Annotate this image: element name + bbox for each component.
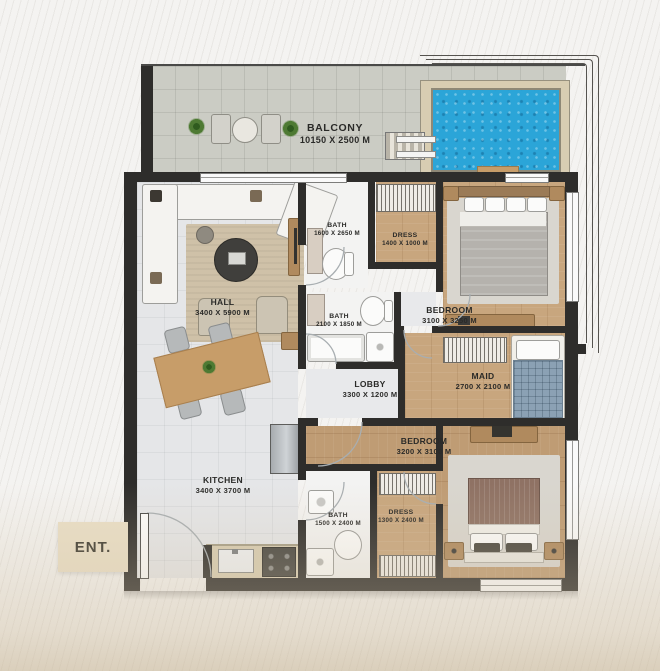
bed-sheet-fold — [460, 212, 546, 227]
room-dims: 1300 X 2400 M — [366, 517, 436, 525]
pool-ladder-icon — [396, 136, 436, 143]
room-name: HALL — [170, 297, 275, 308]
room-label-bath-top: BATH 1600 X 2650 M — [302, 222, 372, 238]
room-dims: 3100 X 3250 M — [392, 316, 507, 325]
window — [566, 192, 579, 302]
nightstand-icon — [549, 186, 565, 201]
room-name: BATH — [302, 222, 372, 230]
room-name: BALCONY — [270, 122, 400, 135]
side-table-icon — [196, 226, 214, 244]
room-label-hall: HALL 3400 X 5900 M — [170, 297, 275, 317]
room-label-bath-bottom: BATH 1500 X 2400 M — [302, 512, 374, 528]
room-name: LOBBY — [320, 379, 420, 390]
balcony-chair-icon — [211, 114, 231, 144]
toilet-tank-icon — [344, 252, 354, 276]
room-dims: 2700 X 2100 M — [432, 382, 534, 391]
room-dims: 1500 X 2400 M — [302, 520, 374, 528]
room-dims: 2100 X 1850 M — [303, 321, 375, 329]
wall-segment — [362, 418, 578, 426]
nightstand-icon — [443, 186, 459, 201]
headboard-icon — [458, 186, 550, 197]
room-dims: 3400 X 5900 M — [170, 308, 275, 317]
room-label-dress-top: DRESS 1400 X 1000 M — [370, 232, 440, 248]
plan-shadow — [124, 591, 578, 600]
sofa-icon — [142, 184, 178, 304]
pillow-icon — [516, 340, 560, 360]
nightstand-icon — [444, 542, 464, 560]
room-name: DRESS — [366, 509, 436, 517]
wall-segment — [141, 64, 585, 66]
wardrobe-icon — [379, 473, 436, 495]
window — [505, 173, 549, 183]
tv-icon — [492, 425, 512, 437]
room-dims: 3200 X 3100 M — [366, 447, 482, 456]
entrance-tag: ENT. — [58, 522, 128, 572]
balcony-table-icon — [232, 117, 258, 143]
sliding-door — [200, 173, 347, 183]
room-name: BEDROOM — [366, 436, 482, 447]
room-label-balcony: BALCONY 10150 X 2500 M — [270, 122, 400, 146]
room-name: BATH — [302, 512, 374, 520]
pillow-icon — [464, 197, 484, 212]
wall-segment — [336, 362, 401, 369]
pillow-icon — [506, 197, 526, 212]
wall-segment — [298, 464, 443, 471]
laptop-icon — [228, 252, 246, 265]
room-dims: 3300 X 1200 M — [320, 390, 420, 399]
wall-segment — [298, 420, 306, 480]
shower-icon — [306, 548, 334, 576]
tv-icon — [294, 228, 297, 264]
wall-segment — [203, 545, 212, 578]
cushion-icon — [150, 190, 162, 202]
bathtub-icon — [307, 334, 365, 362]
plant-icon — [188, 118, 205, 135]
floor-plan-canvas: BALCONY 10150 X 2500 M BATH 1600 X 2650 … — [0, 0, 660, 671]
wall-segment — [298, 362, 306, 369]
room-label-bedroom-bottom: BEDROOM 3200 X 3100 M — [366, 436, 482, 456]
wall-segment — [298, 418, 318, 426]
shower-icon — [366, 332, 394, 362]
bed-icon — [468, 478, 540, 528]
cushion-icon — [150, 272, 162, 284]
room-name: BEDROOM — [392, 305, 507, 316]
plant-icon — [202, 360, 216, 374]
room-name: MAID — [432, 371, 534, 382]
wall-segment — [432, 326, 578, 333]
room-label-lobby: LOBBY 3300 X 1200 M — [320, 379, 420, 399]
room-label-dress-bottom: DRESS 1300 X 2400 M — [366, 509, 436, 525]
room-dims: 3400 X 3700 M — [166, 486, 280, 495]
toilet-icon — [334, 530, 362, 560]
pillow-icon — [527, 197, 547, 212]
faucet-icon — [232, 549, 238, 554]
nightstand-icon — [544, 542, 564, 560]
window — [480, 579, 562, 592]
entrance-label: ENT. — [75, 539, 112, 556]
room-name: BATH — [303, 313, 375, 321]
room-label-maid: MAID 2700 X 2100 M — [432, 371, 534, 391]
room-name: KITCHEN — [166, 475, 280, 486]
sink-icon — [308, 490, 334, 514]
room-dims: 10150 X 2500 M — [270, 135, 400, 146]
wall-segment — [141, 66, 153, 178]
wall-segment — [298, 520, 306, 578]
pillow-icon — [485, 197, 505, 212]
window — [566, 440, 579, 540]
fridge-icon — [270, 424, 300, 474]
wall-segment — [368, 262, 443, 269]
stove-icon — [262, 547, 296, 577]
room-dims: 1600 X 2650 M — [302, 230, 372, 238]
room-dims: 1400 X 1000 M — [370, 240, 440, 248]
entrance-door-leaf — [140, 513, 149, 579]
room-label-bedroom-top: BEDROOM 3100 X 3250 M — [392, 305, 507, 325]
wall-segment — [436, 504, 443, 578]
room-label-kitchen: KITCHEN 3400 X 3700 M — [166, 475, 280, 495]
room-label-bath-middle: BATH 2100 X 1850 M — [303, 313, 375, 329]
cushion-icon — [250, 190, 262, 202]
room-name: DRESS — [370, 232, 440, 240]
wall-segment — [124, 578, 140, 591]
wall-segment — [398, 333, 405, 418]
wardrobe-icon — [376, 184, 436, 212]
wardrobe-icon — [443, 337, 507, 363]
pool-ladder-icon — [396, 151, 436, 158]
headboard-icon — [464, 552, 544, 563]
wardrobe-icon — [379, 555, 436, 577]
